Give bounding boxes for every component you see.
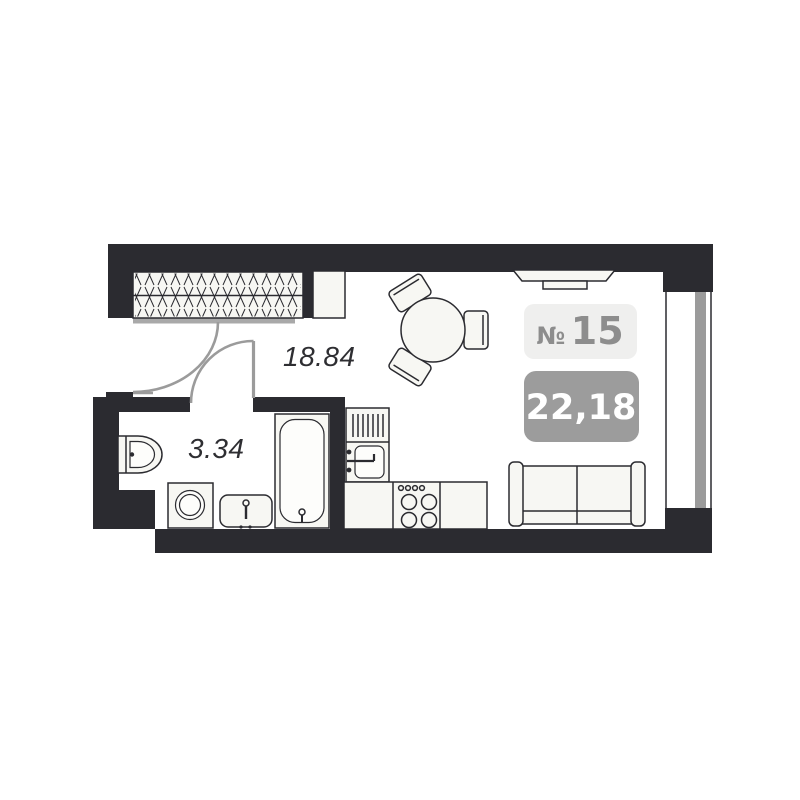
sofa-armrest [631,462,645,526]
bathroom-sink [220,495,272,529]
wall-top-right-block [663,244,713,292]
entrance-door-arc [133,322,218,392]
floor-plan: 18.84 3.34 № 15 22,18 [0,0,800,800]
hall-cabinet [313,271,345,318]
dish-drainer [353,414,383,437]
doors [133,318,295,403]
living-room-area-label: 18.84 [283,341,356,372]
window [666,292,711,508]
wall-kitchen-partition [330,397,345,529]
toilet [118,436,162,473]
wardrobe-shadow [133,318,295,324]
unit-number-value: 15 [571,309,624,353]
wall-top-left-block [108,244,135,318]
bathroom-door-arc [191,341,254,403]
bathroom-area-label: 3.34 [188,433,245,464]
wall-bathroom-step [93,490,155,529]
total-area-value: 22,18 [526,388,637,428]
dining-table [401,298,465,362]
floor-plan-drawing: 18.84 3.34 № 15 22,18 [0,0,800,800]
wall-bathroom-left [93,397,119,499]
wall-niche-divider [303,272,313,318]
sofa-armrest [509,462,523,526]
sofa [509,462,645,526]
tv-screen [513,270,615,281]
total-area-badge: 22,18 [524,371,639,442]
chair [464,311,488,349]
wardrobe-hanger-hatch [135,296,301,317]
unit-number-prefix: № [536,322,565,350]
wardrobe [133,272,303,318]
window-glass-band [695,292,706,508]
bathtub [275,414,329,528]
unit-number-badge: № 15 [524,304,637,359]
wall-top [108,244,672,272]
tv-bracket [543,281,587,289]
wall-bathroom-top-right [253,397,333,412]
tv [513,270,615,289]
dining-set [388,273,488,387]
wardrobe-hanger-hatch [135,274,301,296]
kitchen [344,408,487,529]
wall-bottom [155,529,712,553]
washing-machine [168,483,213,528]
